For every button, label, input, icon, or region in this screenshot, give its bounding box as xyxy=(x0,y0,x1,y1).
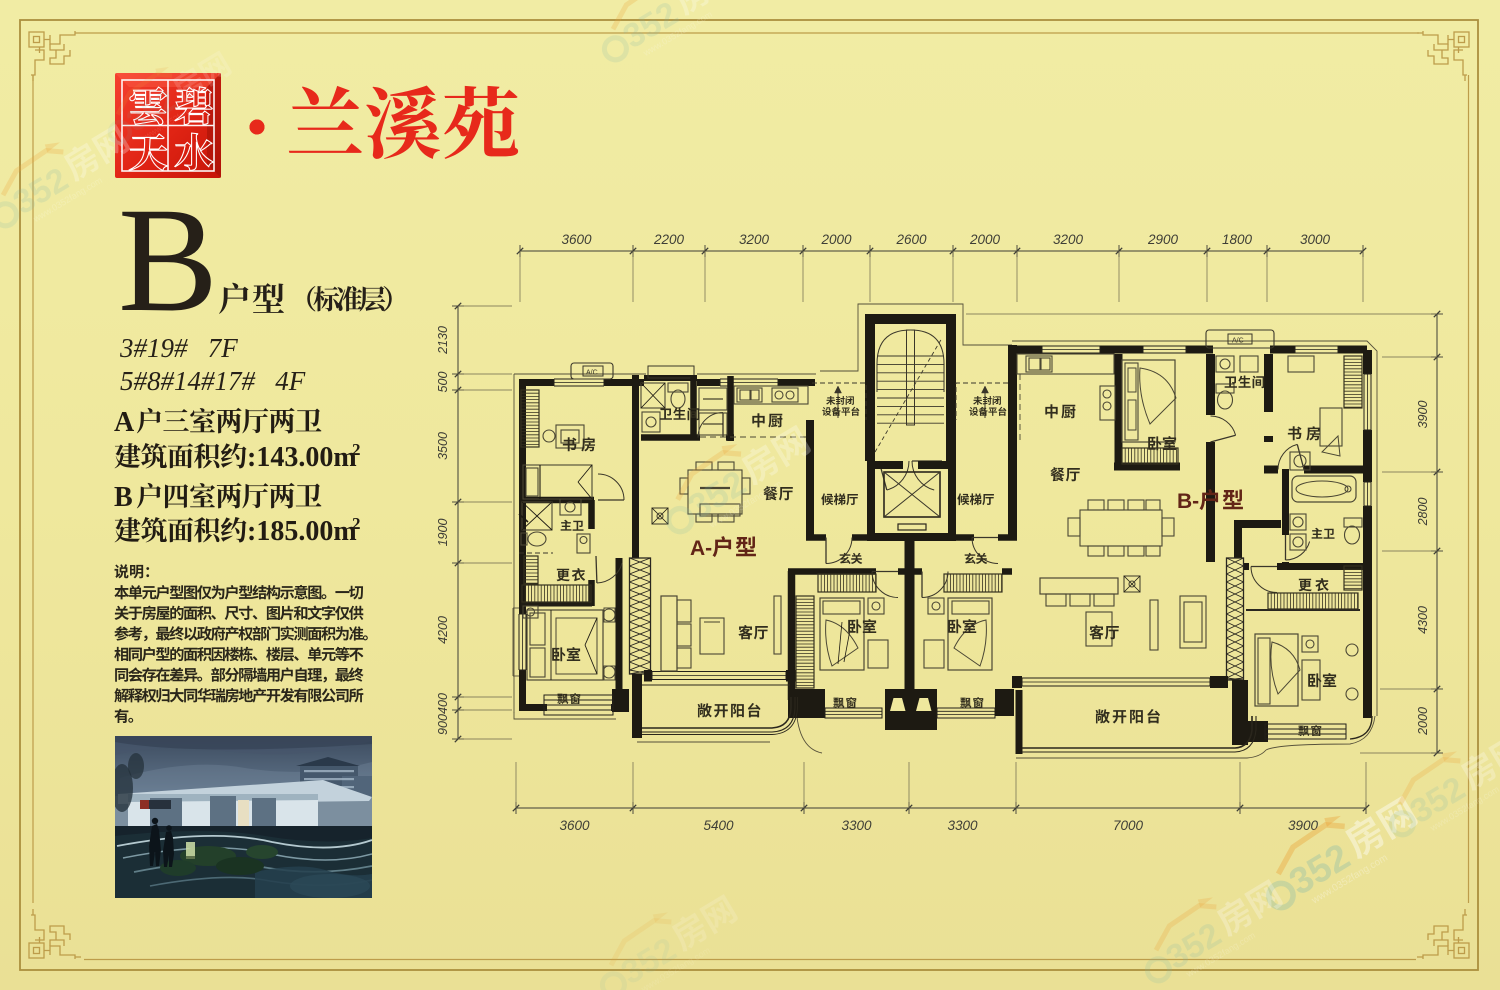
svg-text:2600: 2600 xyxy=(895,232,927,247)
svg-text:1900: 1900 xyxy=(436,519,450,547)
svg-text:A/C: A/C xyxy=(586,370,598,377)
svg-text:2200: 2200 xyxy=(653,232,685,247)
svg-text:2: 2 xyxy=(352,440,361,459)
svg-text:900: 900 xyxy=(436,714,450,735)
svg-text:B: B xyxy=(118,177,218,343)
svg-text:4300: 4300 xyxy=(1416,606,1430,634)
svg-text:2000: 2000 xyxy=(969,232,1001,247)
svg-text:5400: 5400 xyxy=(703,818,734,833)
svg-text:3200: 3200 xyxy=(739,232,770,247)
svg-text:2900: 2900 xyxy=(1147,232,1179,247)
svg-text:3#19# 7F: 3#19# 7F xyxy=(119,333,238,363)
svg-text::185.00m: :185.00m xyxy=(247,516,357,547)
svg-text:A: A xyxy=(114,407,135,438)
svg-text:3600: 3600 xyxy=(559,818,590,833)
svg-text:3200: 3200 xyxy=(1053,232,1084,247)
svg-text:2: 2 xyxy=(352,514,361,533)
svg-text:2130: 2130 xyxy=(436,326,450,355)
svg-text:5#8#14#17# 4F: 5#8#14#17# 4F xyxy=(120,366,306,396)
svg-text:7000: 7000 xyxy=(1113,818,1144,833)
svg-text:2000: 2000 xyxy=(1416,707,1430,736)
svg-text:3500: 3500 xyxy=(436,432,450,460)
svg-text:500: 500 xyxy=(436,372,450,393)
svg-text:3600: 3600 xyxy=(561,232,592,247)
svg-text:2000: 2000 xyxy=(820,232,852,247)
svg-text:1800: 1800 xyxy=(1222,232,1253,247)
svg-text:B-: B- xyxy=(1177,490,1199,513)
svg-text:2800: 2800 xyxy=(1416,498,1430,527)
svg-text:4200: 4200 xyxy=(436,616,450,644)
svg-text::143.00m: :143.00m xyxy=(247,442,357,473)
svg-text:3900: 3900 xyxy=(1416,401,1430,429)
svg-text:A-: A- xyxy=(690,537,712,560)
svg-text:3000: 3000 xyxy=(1300,232,1331,247)
svg-text:B: B xyxy=(114,482,133,513)
svg-text:3300: 3300 xyxy=(947,818,978,833)
svg-text:3300: 3300 xyxy=(841,818,872,833)
svg-text:400: 400 xyxy=(436,693,450,714)
svg-text:A/C: A/C xyxy=(1232,338,1244,345)
